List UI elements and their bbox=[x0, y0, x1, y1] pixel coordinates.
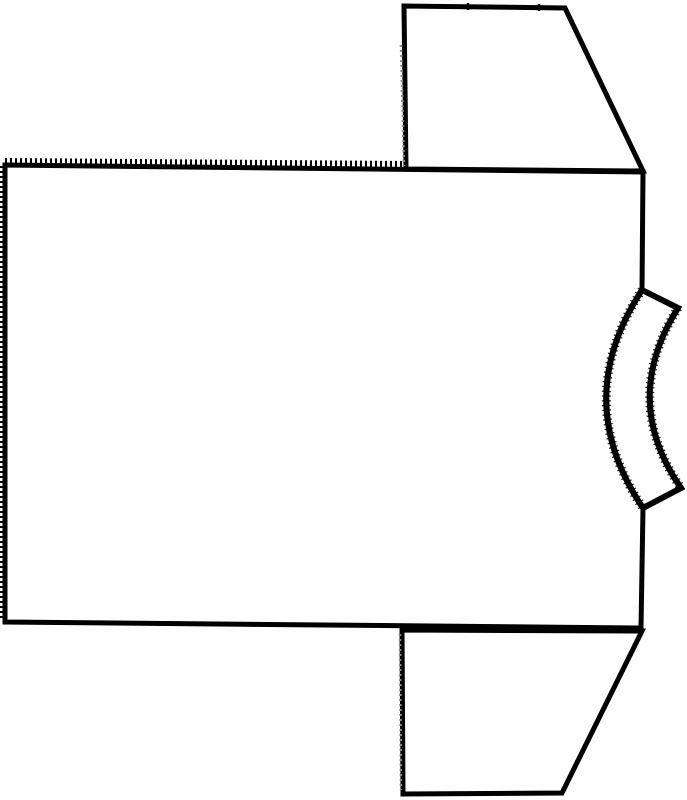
top-sleeve-outline bbox=[404, 6, 643, 171]
tshirt-pattern-figure bbox=[0, 0, 687, 800]
bottom-sleeve-outline bbox=[402, 630, 642, 794]
shirt-body-panel-outline bbox=[5, 165, 643, 628]
page bbox=[0, 0, 687, 800]
